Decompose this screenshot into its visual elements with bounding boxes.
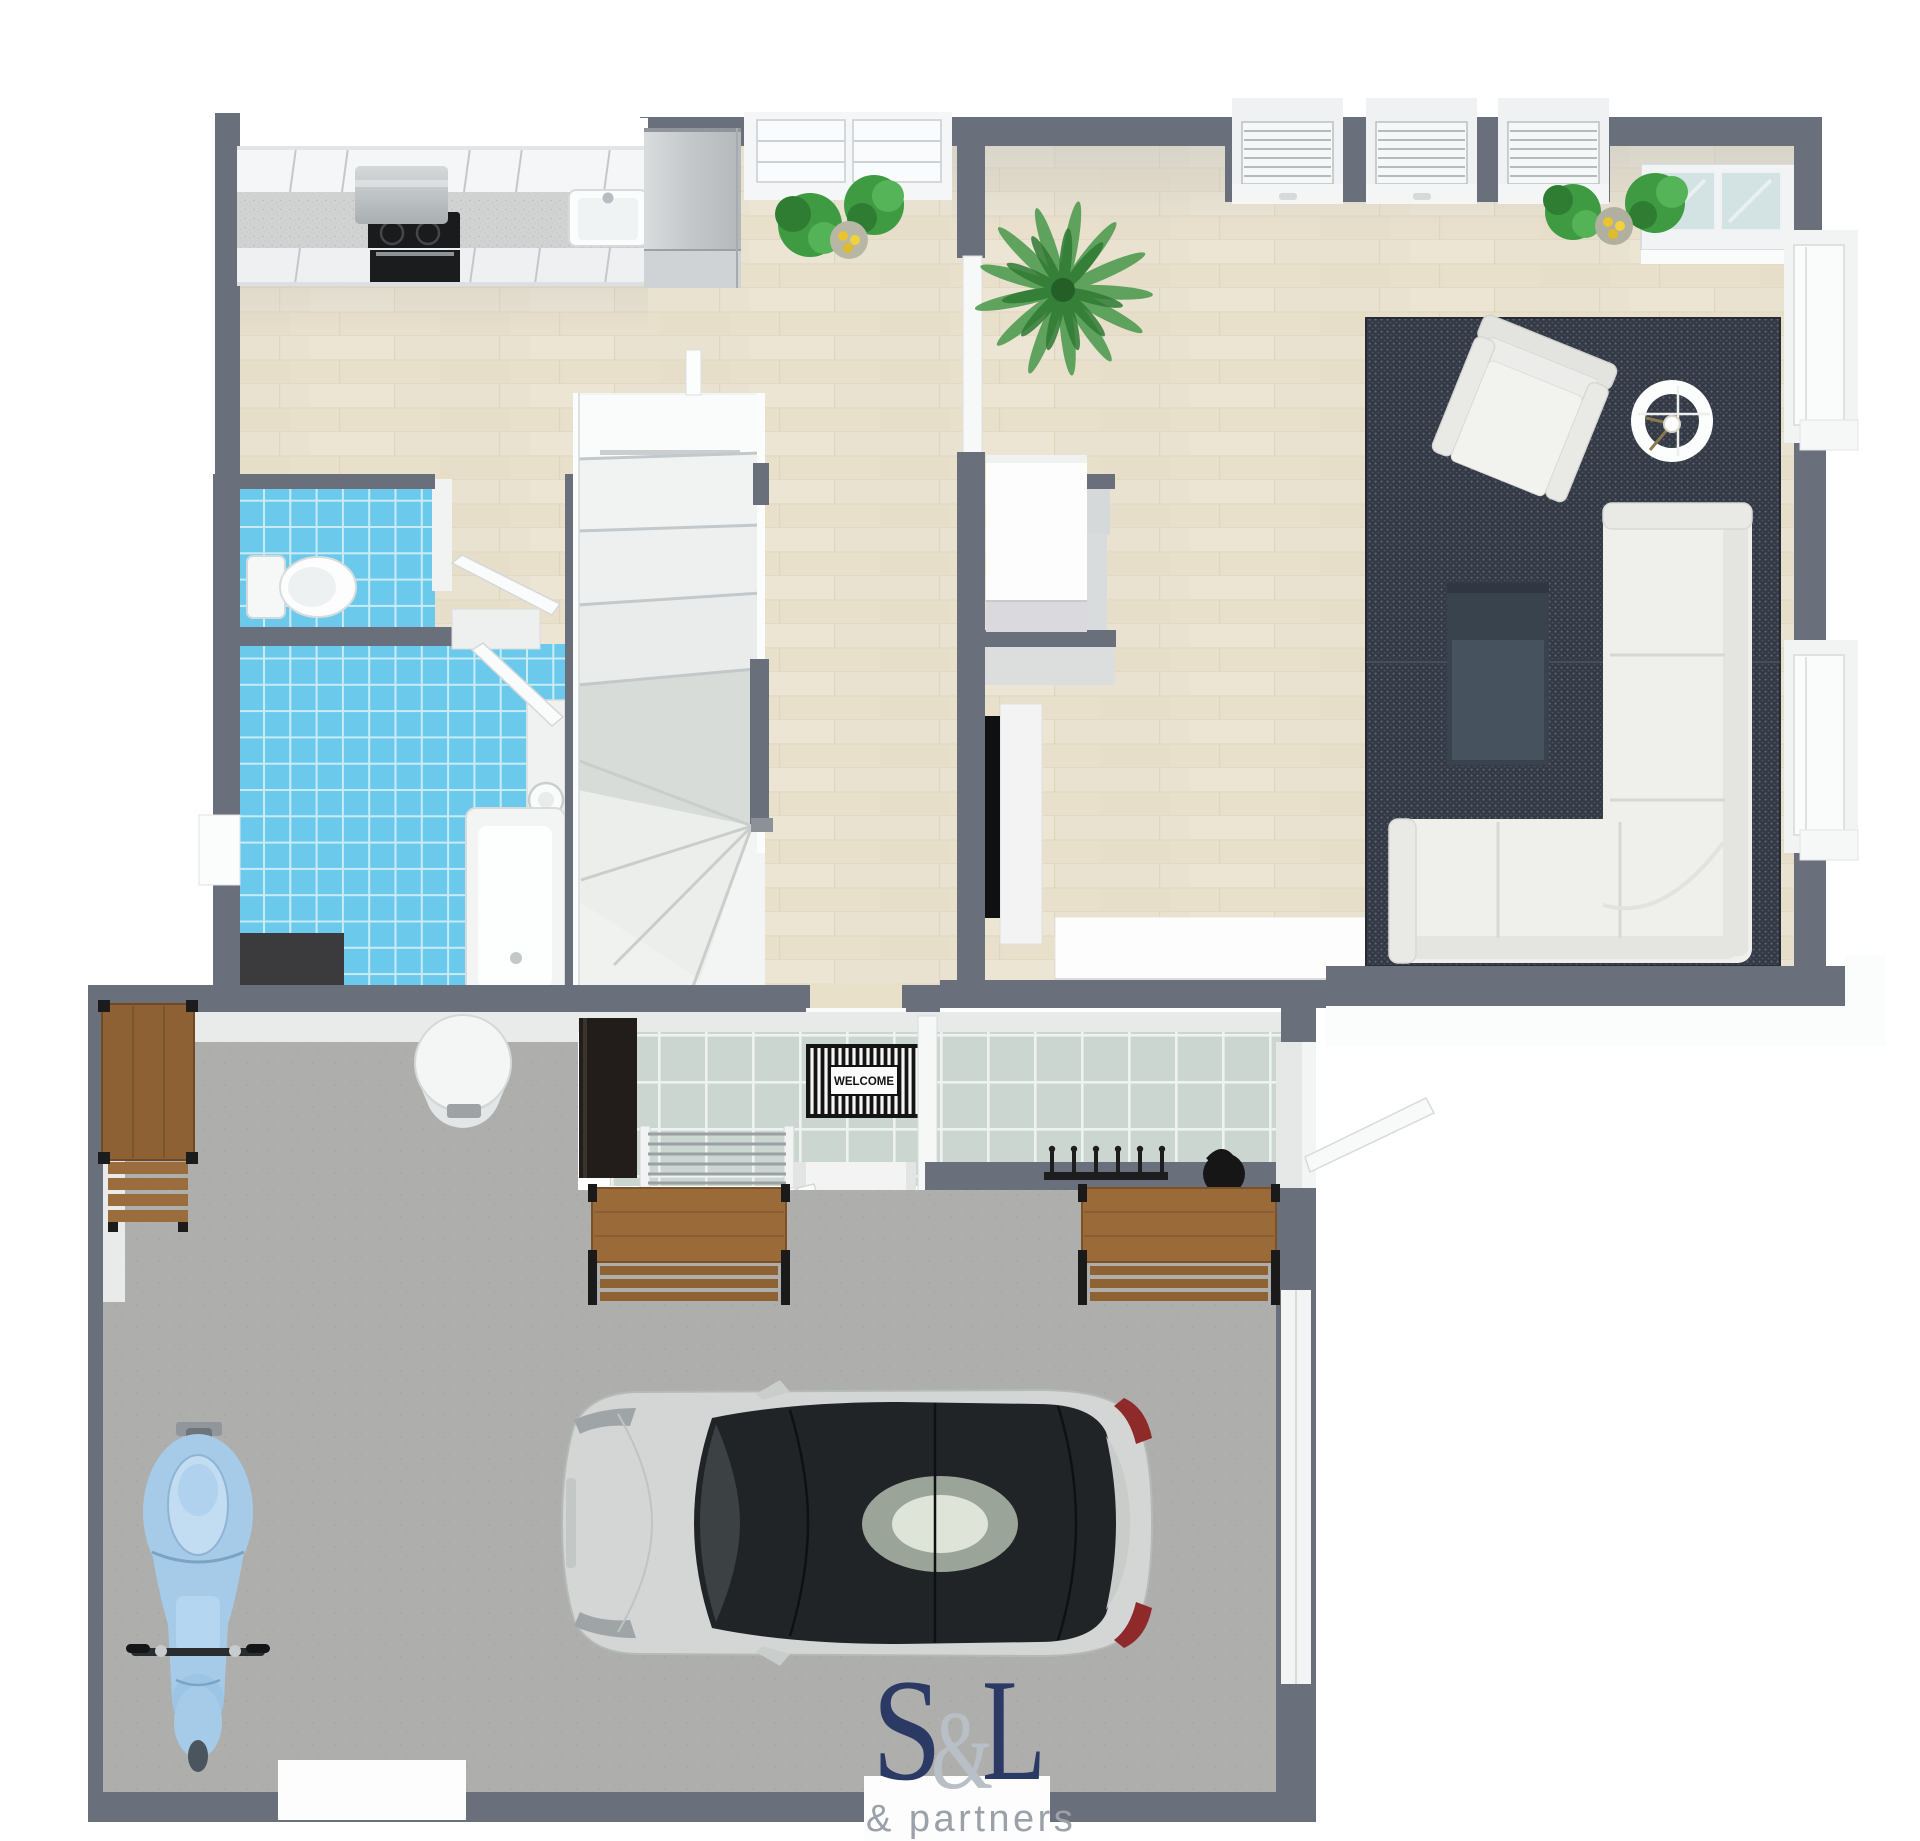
svg-text:& partners: & partners (866, 1798, 1076, 1840)
svg-text:WELCOME: WELCOME (834, 1076, 894, 1088)
svg-text:L: L (982, 1649, 1046, 1811)
